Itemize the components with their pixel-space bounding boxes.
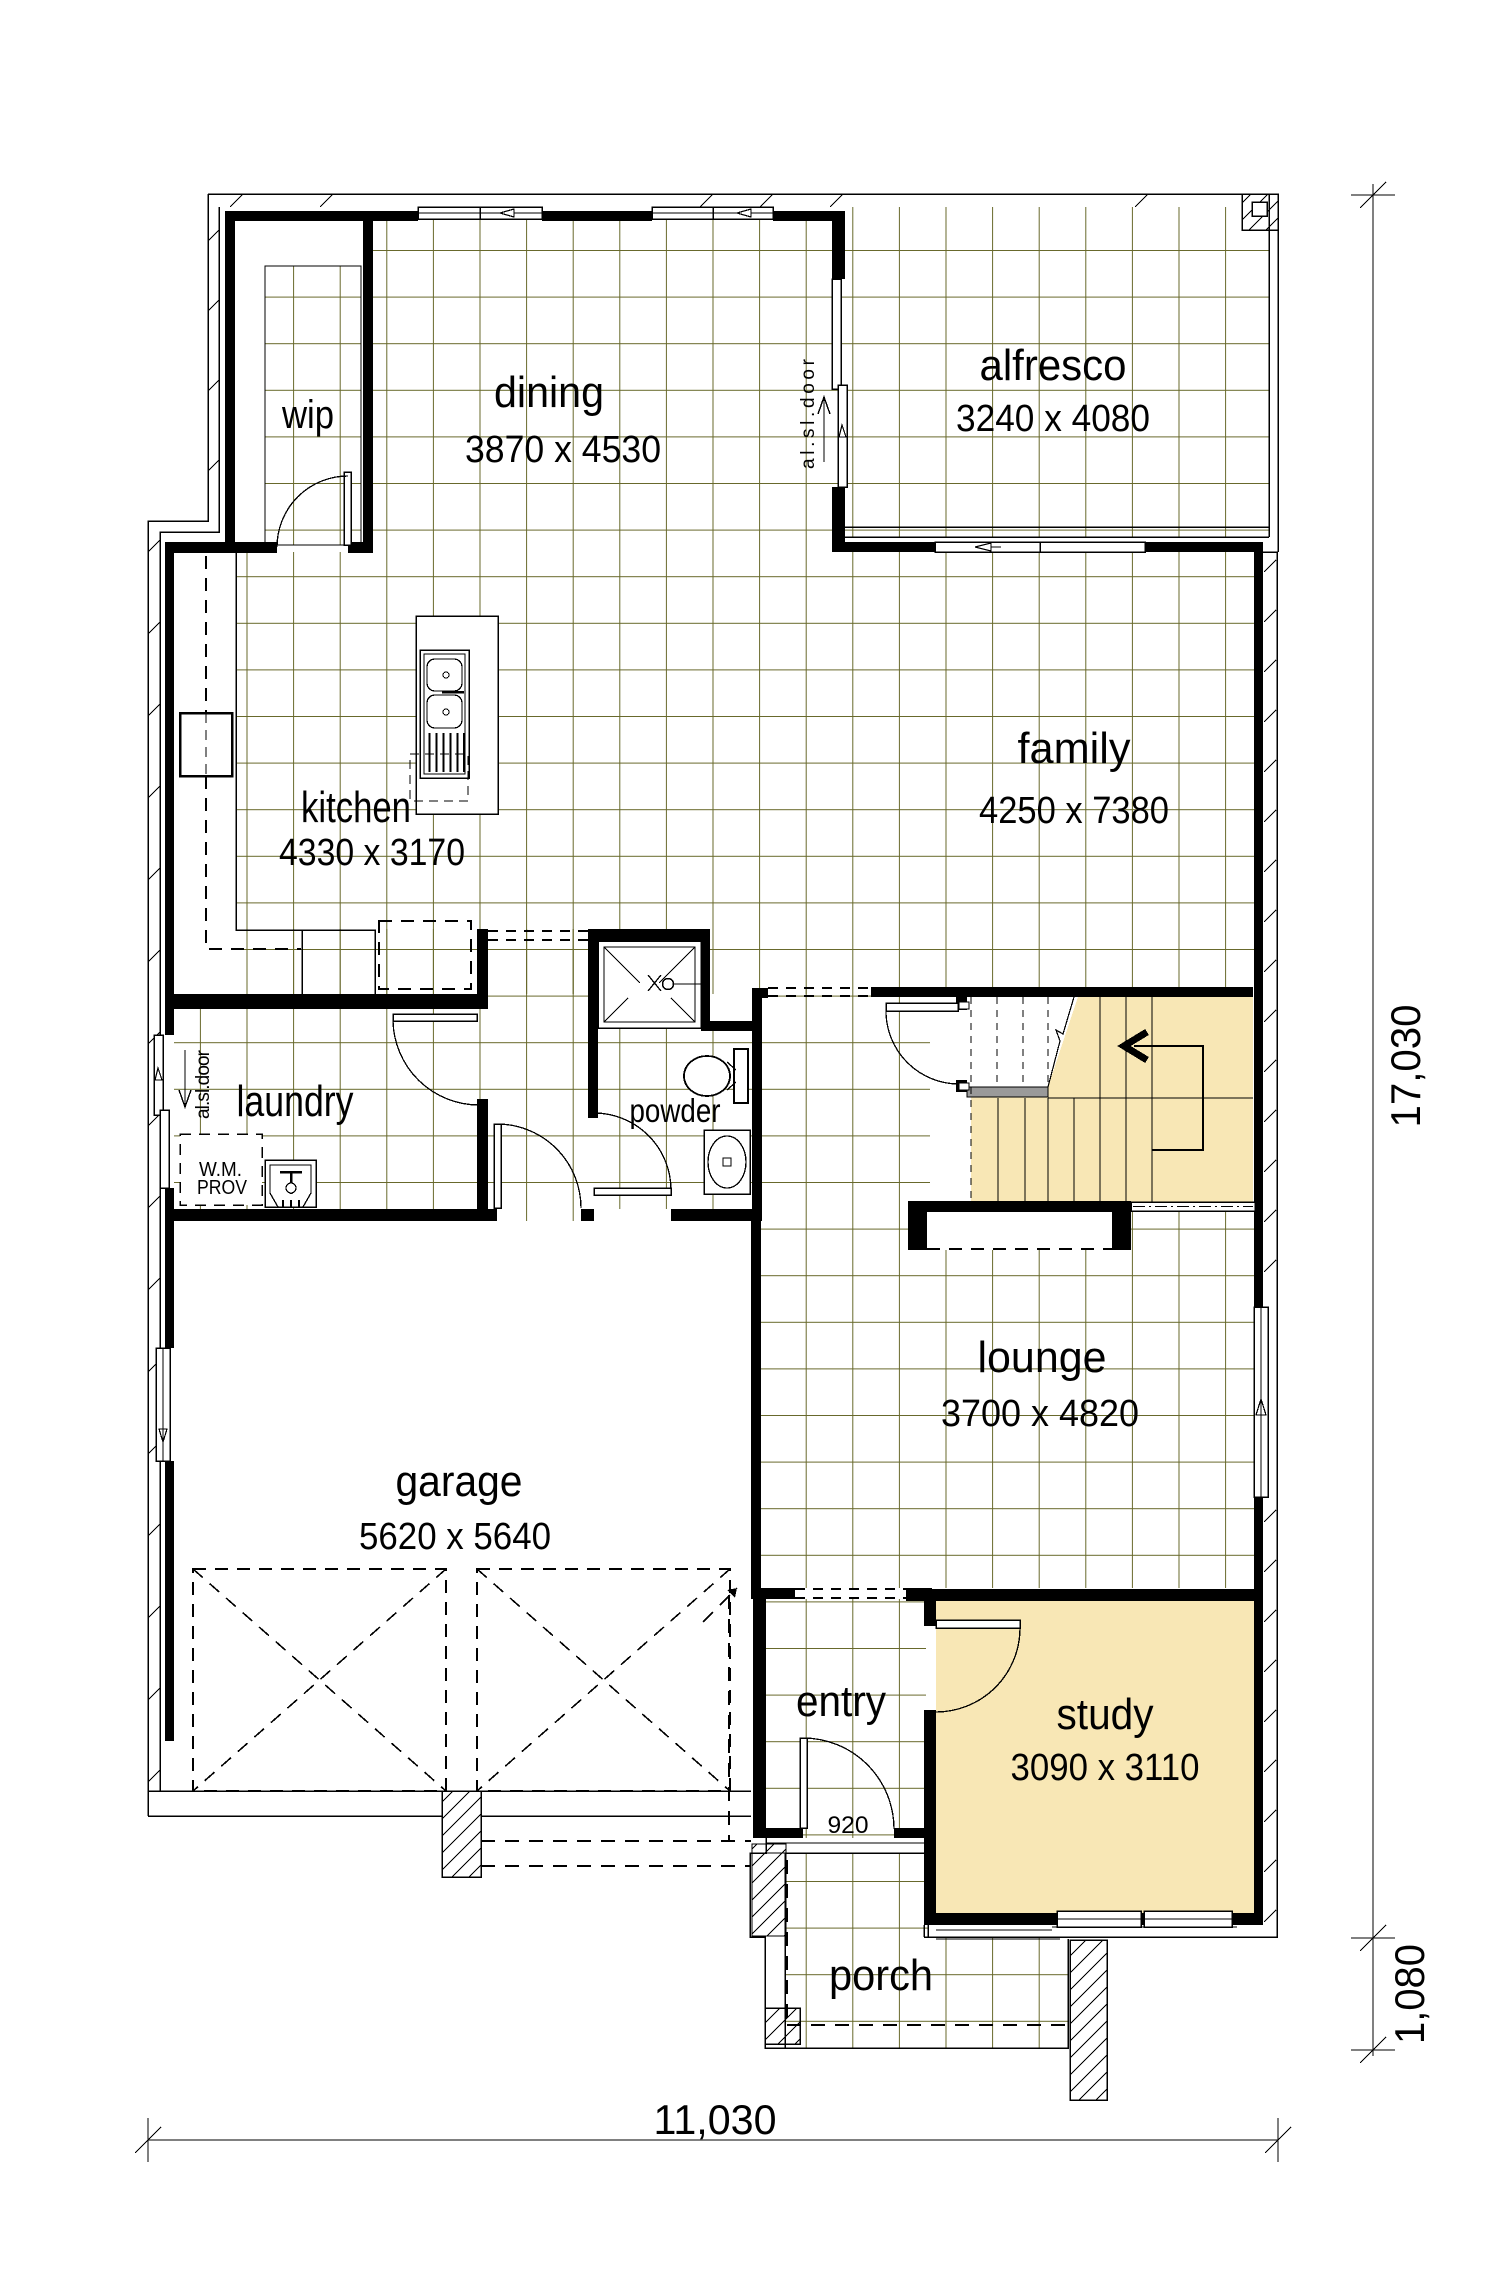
svg-text:lounge: lounge [978, 1333, 1107, 1382]
svg-text:17,030: 17,030 [1382, 1005, 1429, 1128]
svg-text:3870 x 4530: 3870 x 4530 [465, 429, 661, 471]
svg-text:porch: porch [829, 1951, 933, 2000]
svg-text:laundry: laundry [237, 1077, 354, 1126]
svg-text:study: study [1057, 1690, 1154, 1739]
svg-text:dining: dining [494, 368, 604, 417]
svg-text:1,080: 1,080 [1386, 1944, 1433, 2044]
svg-text:entry: entry [796, 1677, 886, 1726]
svg-text:11,030: 11,030 [654, 2096, 777, 2143]
svg-text:5620 x 5640: 5620 x 5640 [359, 1516, 551, 1558]
svg-text:3090 x 3110: 3090 x 3110 [1011, 1747, 1200, 1789]
svg-text:family: family [1018, 724, 1131, 773]
svg-text:garage: garage [396, 1457, 523, 1506]
svg-text:wip: wip [281, 393, 334, 437]
svg-text:alfresco: alfresco [980, 341, 1127, 390]
svg-text:920: 920 [828, 1812, 869, 1839]
svg-text:al.sl.door: al.sl.door [193, 1049, 214, 1119]
svg-text:3700 x 4820: 3700 x 4820 [941, 1393, 1139, 1435]
svg-text:PROV: PROV [197, 1177, 248, 1199]
svg-text:al.sl.door: al.sl.door [798, 358, 819, 469]
svg-text:4330 x 3170: 4330 x 3170 [279, 832, 465, 874]
svg-text:3240 x 4080: 3240 x 4080 [956, 398, 1150, 440]
svg-text:kitchen: kitchen [301, 783, 411, 832]
svg-text:4250 x 7380: 4250 x 7380 [979, 790, 1169, 832]
svg-text:powder: powder [630, 1092, 721, 1129]
